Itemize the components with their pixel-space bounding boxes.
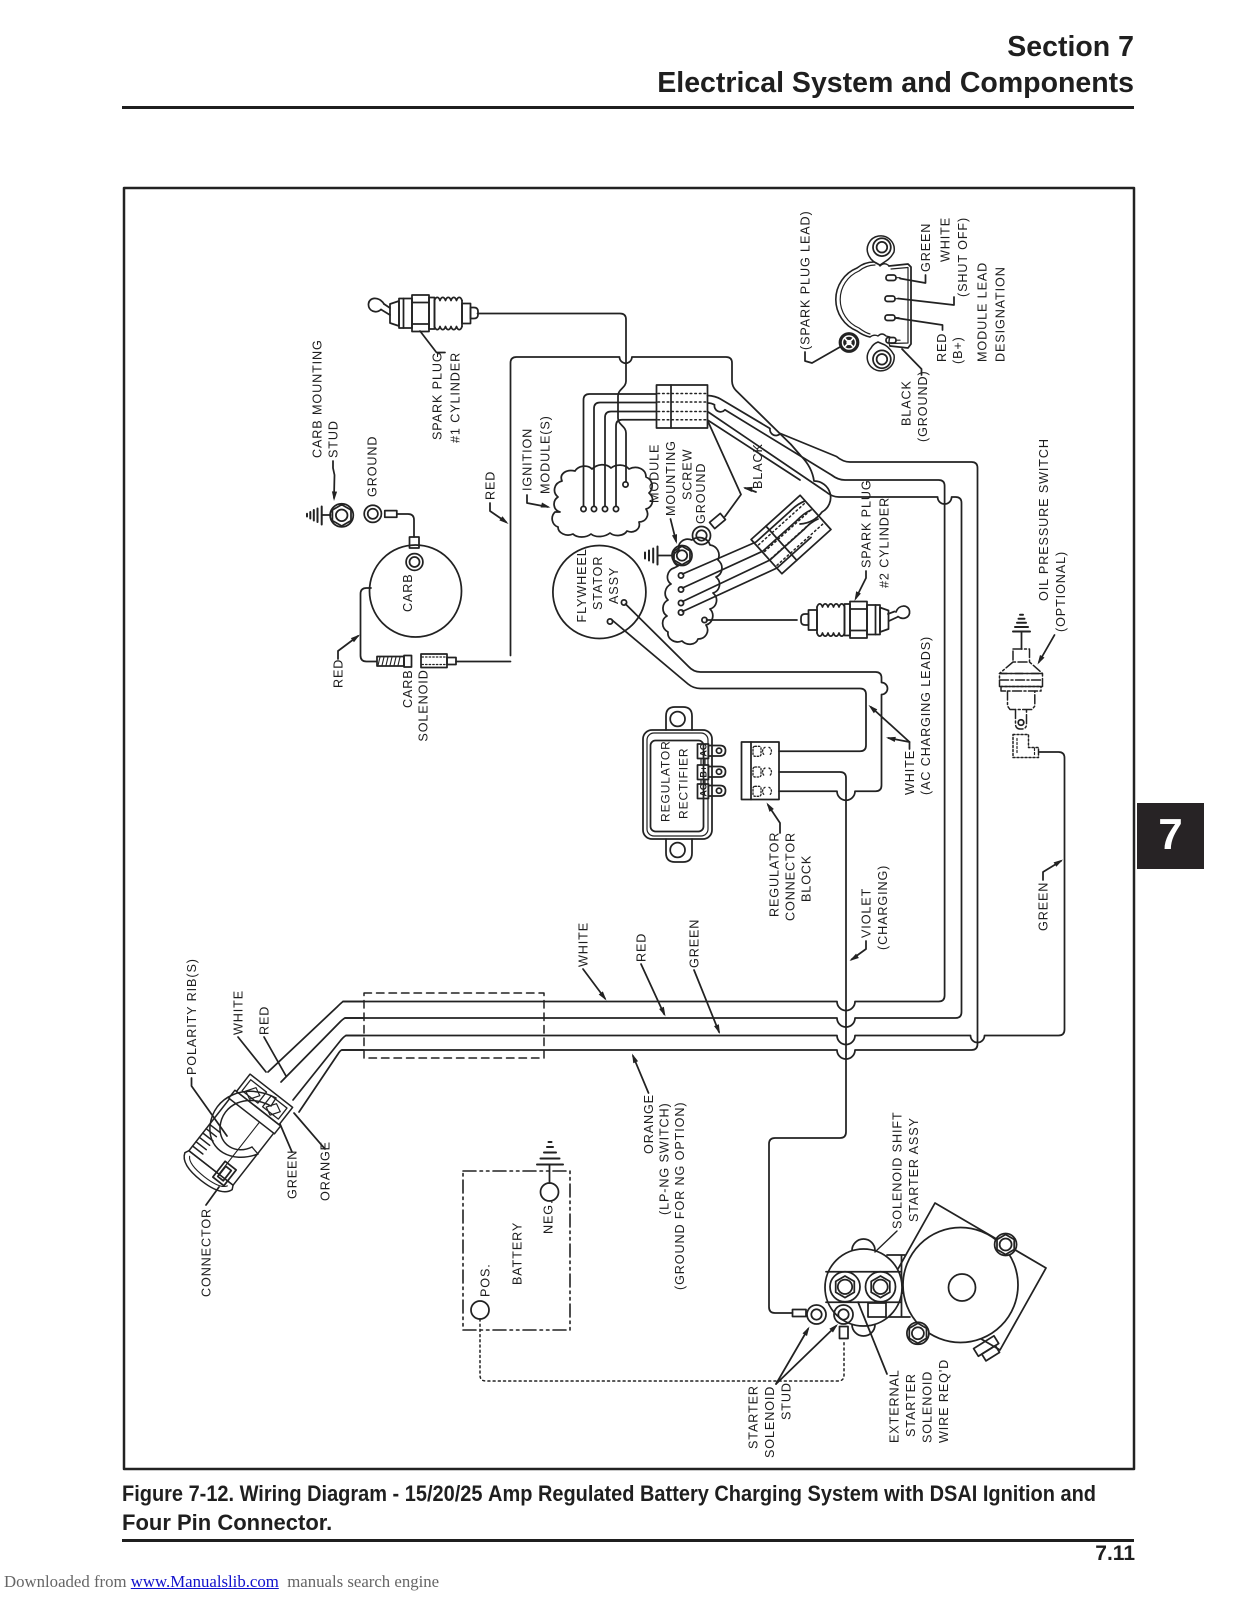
svg-text:RED: RED — [484, 471, 498, 500]
svg-text:(B+): (B+) — [951, 336, 965, 364]
svg-text:REGULATOR: REGULATOR — [659, 740, 673, 822]
svg-text:SPARK PLUG: SPARK PLUG — [860, 479, 874, 568]
svg-text:ORANGE: ORANGE — [319, 1141, 333, 1201]
svg-text:RED: RED — [635, 933, 649, 962]
svg-text:STARTER ASSY: STARTER ASSY — [907, 1117, 921, 1222]
svg-text:MOUNTING: MOUNTING — [664, 440, 678, 516]
svg-text:GROUND: GROUND — [366, 436, 380, 497]
svg-text:REGULATOR: REGULATOR — [768, 832, 782, 917]
svg-text:DESIGNATION: DESIGNATION — [994, 266, 1008, 362]
svg-text:(CHARGING): (CHARGING) — [876, 865, 890, 950]
svg-text:MODULE: MODULE — [648, 444, 662, 503]
svg-text:BLACK: BLACK — [900, 380, 914, 426]
svg-text:ASSY: ASSY — [607, 567, 621, 604]
svg-text:MODULE LEAD: MODULE LEAD — [976, 262, 990, 362]
svg-text:FLYWHEEL: FLYWHEEL — [575, 548, 589, 622]
svg-text:STUD: STUD — [327, 420, 341, 458]
svg-text:(GROUND FOR NG OPTION): (GROUND FOR NG OPTION) — [673, 1102, 687, 1290]
svg-text:CARB: CARB — [401, 669, 415, 708]
svg-text:(OPTIONAL): (OPTIONAL) — [1054, 551, 1068, 632]
svg-text:STUD: STUD — [780, 1382, 794, 1420]
svg-text:NEG.: NEG. — [542, 1200, 556, 1234]
svg-text:SOLENOID: SOLENOID — [417, 669, 431, 741]
svg-text:GREEN: GREEN — [919, 223, 933, 272]
svg-text:GREEN: GREEN — [286, 1150, 300, 1199]
svg-text:BLOCK: BLOCK — [800, 855, 814, 902]
svg-text:WHITE: WHITE — [903, 750, 917, 795]
svg-text:(SPARK PLUG LEAD): (SPARK PLUG LEAD) — [799, 210, 813, 350]
svg-text:SPARK PLUG: SPARK PLUG — [431, 351, 445, 440]
svg-text:(AC CHARGING LEADS): (AC CHARGING LEADS) — [919, 636, 933, 795]
svg-text:B+: B+ — [699, 766, 709, 778]
svg-text:SOLENOID: SOLENOID — [763, 1386, 777, 1458]
svg-text:RED: RED — [258, 1006, 272, 1035]
svg-text:SOLENOID SHIFT: SOLENOID SHIFT — [891, 1111, 905, 1229]
svg-text:CONNECTOR: CONNECTOR — [200, 1208, 214, 1297]
svg-text:STATOR: STATOR — [591, 556, 605, 610]
svg-text:WHITE: WHITE — [939, 217, 953, 262]
svg-text:MODULE(S): MODULE(S) — [539, 415, 553, 494]
svg-text:CONNECTOR: CONNECTOR — [784, 832, 798, 921]
svg-text:POLARITY RIB(S): POLARITY RIB(S) — [185, 958, 199, 1075]
svg-text:(GROUND): (GROUND) — [916, 370, 930, 442]
svg-text:STARTER: STARTER — [904, 1373, 918, 1437]
svg-text:#2 CYLINDER: #2 CYLINDER — [878, 497, 892, 588]
svg-text:IGNITION: IGNITION — [521, 428, 535, 491]
svg-text:BLACK: BLACK — [751, 443, 765, 489]
svg-text:AC: AC — [699, 783, 709, 796]
svg-text:GROUND: GROUND — [694, 463, 708, 524]
svg-text:(SHUT OFF): (SHUT OFF) — [956, 217, 970, 297]
svg-text:RED: RED — [332, 659, 346, 688]
svg-text:GREEN: GREEN — [1037, 882, 1051, 931]
svg-text:OIL PRESSURE SWITCH: OIL PRESSURE SWITCH — [1037, 438, 1051, 601]
svg-text:EXTERNAL: EXTERNAL — [888, 1369, 902, 1443]
svg-text:RED: RED — [935, 333, 949, 362]
svg-text:BATTERY: BATTERY — [511, 1222, 525, 1285]
svg-text:CARB MOUNTING: CARB MOUNTING — [311, 339, 325, 458]
svg-text:GREEN: GREEN — [688, 919, 702, 968]
svg-text:WIRE REQ'D: WIRE REQ'D — [937, 1359, 951, 1443]
svg-text:WHITE: WHITE — [577, 922, 591, 967]
svg-text:WHITE: WHITE — [232, 990, 246, 1035]
svg-text:ORANGE: ORANGE — [642, 1094, 656, 1154]
svg-text:CARB: CARB — [401, 573, 415, 612]
svg-text:VIOLET: VIOLET — [860, 888, 874, 938]
svg-text:RECTIFIER: RECTIFIER — [677, 748, 691, 819]
svg-text:STARTER: STARTER — [747, 1385, 761, 1449]
svg-text:POS.: POS. — [479, 1263, 493, 1297]
svg-text:#1 CYLINDER: #1 CYLINDER — [449, 352, 463, 443]
svg-text:AC: AC — [699, 743, 709, 756]
svg-text:(LP-NG SWITCH): (LP-NG SWITCH) — [658, 1102, 672, 1215]
svg-text:SOLENOID: SOLENOID — [921, 1371, 935, 1443]
svg-text:SCREW: SCREW — [681, 449, 695, 500]
